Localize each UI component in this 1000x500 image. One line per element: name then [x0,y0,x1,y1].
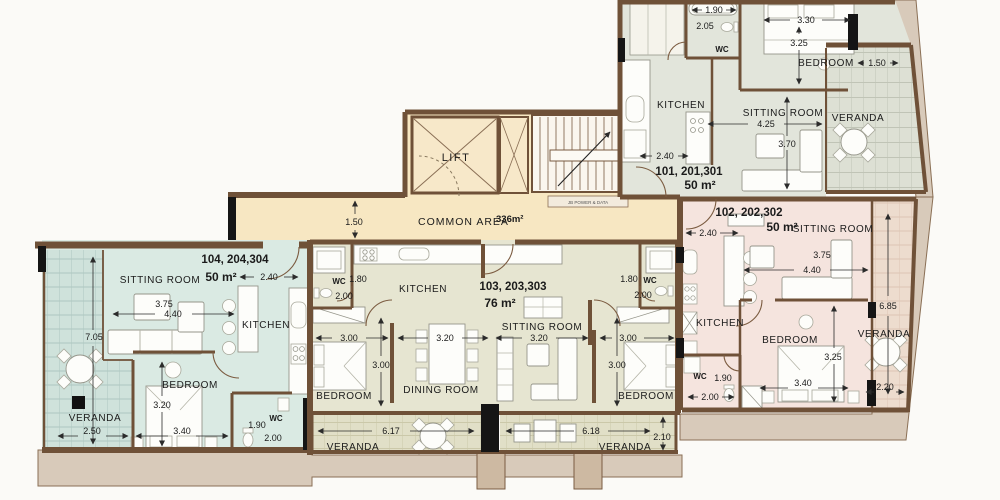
side-table [799,315,813,329]
toilet [243,428,253,447]
closet-shaft [630,2,684,55]
exterior-pillar-left [477,452,505,489]
room-label-dining: DINING ROOM [403,385,479,396]
wall-accent [868,302,876,318]
svg-text:3.40: 3.40 [794,378,812,388]
stool [223,322,236,335]
floor-plan-canvas: JB POWER & DATA LIFT COMMON AREA 336m² 1… [0,0,1000,500]
room-label-kitchen: KITCHEN [242,320,290,331]
svg-text:3.20: 3.20 [153,400,171,410]
pillow [177,436,199,447]
kitchen-island [724,236,744,306]
kitchen-sink [291,302,306,328]
unit-103: 103, 203,303 76 m² KITCHEN SITTING ROOM … [310,240,680,455]
room-label-bedroom: BEDROOM [162,380,218,391]
svg-text:3.30: 3.30 [797,15,815,25]
unit-101-name: 101, 201,301 [655,166,723,178]
sofa-right [558,338,577,400]
svg-text:3.25: 3.25 [790,38,808,48]
svg-text:3.00: 3.00 [372,360,390,370]
unit-104-size: 50 m² [205,270,236,284]
room-label-wc: WC [269,414,283,423]
pillow [150,436,172,447]
svg-text:3.00: 3.00 [340,333,358,343]
svg-text:3.75: 3.75 [155,299,173,309]
wall-accent [848,14,858,50]
room-label-bedroom-left: BEDROOM [316,391,372,402]
svg-text:2.05: 2.05 [696,21,714,31]
wc-basin [278,398,289,411]
lift-label: LIFT [442,152,471,164]
svg-text:3.75: 3.75 [813,250,831,260]
svg-text:2.50: 2.50 [83,426,101,436]
sofa-chaise [800,130,822,172]
nightstand [848,391,859,403]
shower-left-inner [317,251,341,269]
kitchen-island [238,286,258,352]
svg-text:2.10: 2.10 [653,432,671,442]
svg-text:6.18: 6.18 [582,426,600,436]
stool [744,291,757,304]
svg-text:2.00: 2.00 [701,392,719,402]
floor-plan-svg: JB POWER & DATA LIFT COMMON AREA 336m² 1… [0,0,1000,500]
svg-text:2.00: 2.00 [335,291,353,301]
toilet [724,385,734,402]
room-label-wc: WC [693,372,707,381]
svg-text:3.25: 3.25 [824,352,842,362]
armchair [750,246,774,268]
svg-text:1.90: 1.90 [714,373,732,383]
svg-text:7.05: 7.05 [85,332,103,342]
kitchen-hob [360,248,377,261]
room-label-kitchen: KITCHEN [696,318,744,329]
corridor-end-wall [228,197,236,240]
svg-text:4.40: 4.40 [803,265,821,275]
veranda-divider-column [481,404,499,452]
unit-103-name: 103, 203,303 [479,281,546,293]
room-label-veranda: VERANDA [832,113,885,124]
pillow [666,367,676,387]
room-label-kitchen: KITCHEN [399,284,447,295]
svg-text:1.90: 1.90 [248,420,266,430]
sofa-chaise [178,302,204,332]
kitchen-hob [683,284,697,304]
kitchen-sink [683,250,697,274]
svg-text:3.00: 3.00 [619,333,637,343]
svg-text:1.80: 1.80 [620,274,638,284]
pillow [666,345,676,365]
svg-text:6.85: 6.85 [879,301,897,311]
room-label-veranda-left: VERANDA [327,442,380,453]
svg-text:2.00: 2.00 [264,433,282,443]
kitchen-cabinet [624,130,646,158]
unit-101: 101, 201,301 50 m² KITCHEN SITTING ROOM … [618,0,926,197]
room-label-wc-right: WC [643,276,657,285]
svg-text:3.40: 3.40 [173,426,191,436]
sofa-long [742,170,822,191]
room-label-sitting: SITTING ROOM [793,224,874,235]
svg-text:1.80: 1.80 [349,274,367,284]
room-label-bedroom-right: BEDROOM [618,391,674,402]
kitchen-sink [399,248,429,260]
unit-101-size: 50 m² [684,178,715,192]
kitchen-sink [626,96,644,122]
room-label-sitting: SITTING ROOM [120,275,201,286]
kitchen-island [686,112,710,164]
svg-text:2.40: 2.40 [699,228,717,238]
unit-102: 102, 202,302 50 m² SITTING ROOM KITCHEN … [676,197,916,412]
wall-accent [867,380,876,406]
room-label-sitting: SITTING ROOM [743,108,824,119]
side-table [165,362,181,378]
sofa-long [782,277,852,299]
common-area-size: 336m² [496,214,523,225]
exterior-pillar-right [574,452,602,489]
room-label-bedroom: BEDROOM [762,335,818,346]
junction-box-label: JB POWER & DATA [568,200,608,205]
svg-text:3.70: 3.70 [778,139,796,149]
svg-text:4.40: 4.40 [164,309,182,319]
pillow [314,367,324,387]
veranda-table [841,129,867,155]
svg-text:2.40: 2.40 [656,151,674,161]
toilet-left [314,288,332,298]
svg-text:1.50: 1.50 [345,217,363,227]
unit-104-name: 104, 204,304 [201,254,269,266]
unit-102-name: 102, 202,302 [715,207,782,219]
wall-accent [618,38,625,62]
common-area: JB POWER & DATA LIFT COMMON AREA 336m² 1… [228,112,680,240]
shower-right-inner [650,251,672,269]
stool [744,273,757,286]
room-label-veranda: VERANDA [858,329,911,340]
kitchen-counter [354,245,562,264]
room-label-veranda-right: VERANDA [599,442,652,453]
svg-text:2.20: 2.20 [876,382,894,392]
pillow [768,5,798,18]
sofa-long [108,330,202,354]
room-label-wc: WC [715,45,729,54]
unit-103-size: 76 m² [484,296,515,310]
svg-text:2.00: 2.00 [634,290,652,300]
wc-basin [684,357,700,373]
room-label-veranda: VERANDA [69,413,122,424]
pillow [782,390,808,401]
room-label-sitting: SITTING ROOM [502,322,583,333]
stool [223,342,236,355]
svg-text:3.00: 3.00 [608,360,626,370]
wall-accent [38,246,46,272]
pillow [314,345,324,365]
veranda-table [66,355,94,383]
svg-text:1.90: 1.90 [705,5,723,15]
room-label-bedroom: BEDROOM [798,58,854,69]
svg-text:3.20: 3.20 [530,333,548,343]
svg-text:2.40: 2.40 [260,272,278,282]
toilet-right [655,286,673,296]
svg-text:3.20: 3.20 [436,333,454,343]
wall-accent [676,247,684,263]
stool [223,300,236,313]
unit-104: 104, 204,304 50 m² SITTING ROOM KITCHEN … [35,240,311,455]
sofa-chaise [831,240,852,278]
svg-text:4.25: 4.25 [757,119,775,129]
wall-accent [676,338,684,358]
svg-text:1.50: 1.50 [868,58,886,68]
room-label-wc-left: WC [332,277,346,286]
svg-text:6.17: 6.17 [382,426,400,436]
armchair [527,344,549,366]
veranda-column [72,396,85,409]
stair-landing [550,150,620,161]
room-label-kitchen: KITCHEN [657,100,705,111]
toilet [721,22,738,32]
